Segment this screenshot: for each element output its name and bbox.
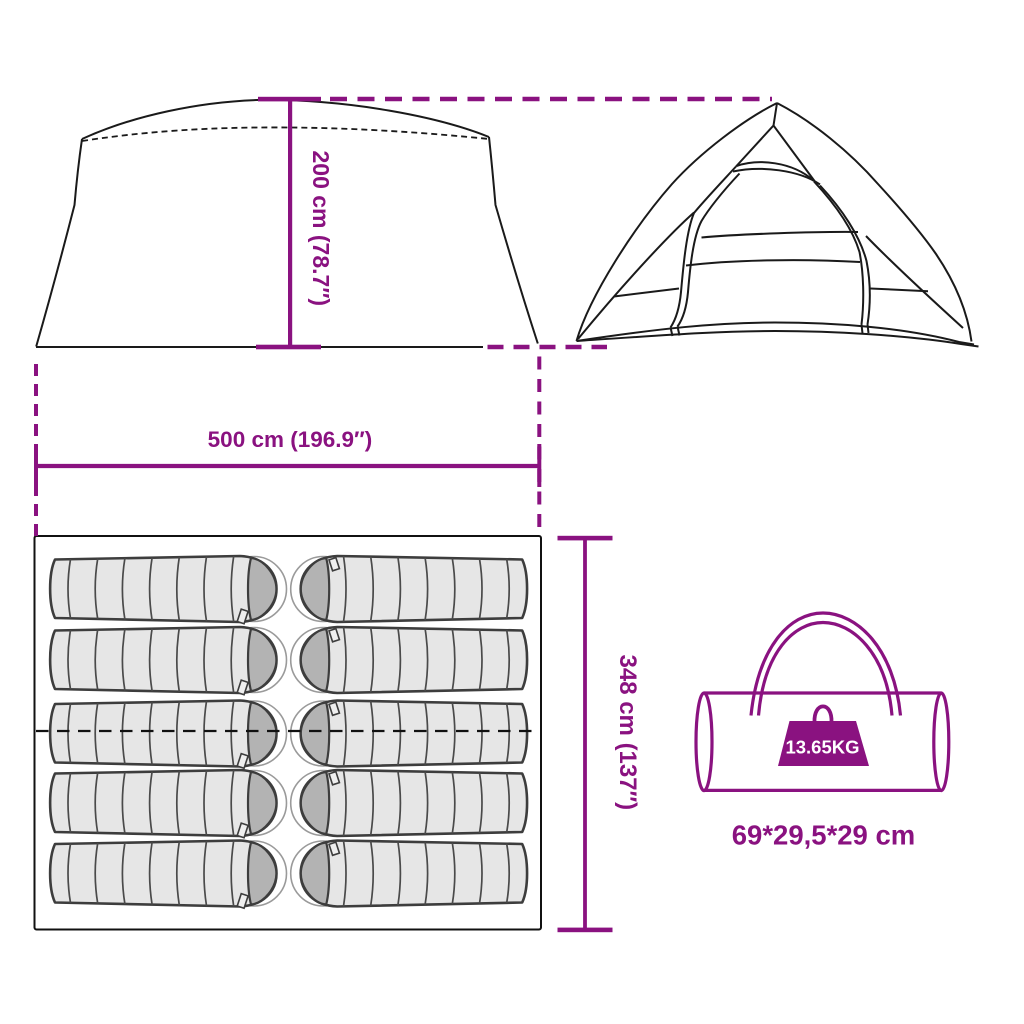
svg-text:500 cm (196.9″): 500 cm (196.9″) <box>208 427 373 452</box>
svg-text:200 cm (78.7″): 200 cm (78.7″) <box>308 151 334 307</box>
svg-text:13.65KG: 13.65KG <box>785 737 859 758</box>
svg-text:69*29,5*29 cm: 69*29,5*29 cm <box>732 820 916 851</box>
svg-text:348 cm (137″): 348 cm (137″) <box>614 655 641 811</box>
